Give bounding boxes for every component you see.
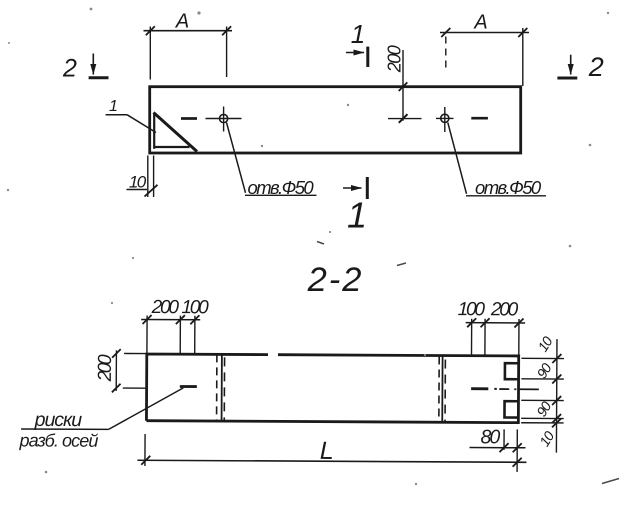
svg-text:10: 10 [129, 173, 147, 192]
svg-text:2-2: 2-2 [307, 261, 364, 299]
svg-text:80: 80 [480, 426, 500, 448]
svg-text:разб. осей: разб. осей [18, 430, 98, 450]
svg-text:1: 1 [347, 195, 367, 236]
svg-text:1: 1 [109, 98, 118, 115]
svg-text:A: A [175, 11, 189, 33]
svg-text:отв.Ф50: отв.Ф50 [248, 177, 315, 198]
svg-text:100: 100 [181, 297, 209, 318]
svg-text:отв.Ф50: отв.Ф50 [475, 177, 542, 198]
svg-text:риски: риски [34, 409, 83, 431]
svg-text:2: 2 [62, 55, 77, 83]
svg-text:200: 200 [151, 297, 180, 318]
svg-text:2: 2 [588, 52, 604, 82]
svg-text:L: L [320, 437, 334, 465]
svg-text:100: 100 [458, 299, 486, 320]
svg-text:1: 1 [351, 19, 365, 49]
svg-text:200: 200 [385, 45, 405, 73]
svg-text:200: 200 [490, 299, 519, 320]
svg-text:200: 200 [95, 354, 116, 382]
svg-text:A: A [473, 12, 487, 34]
